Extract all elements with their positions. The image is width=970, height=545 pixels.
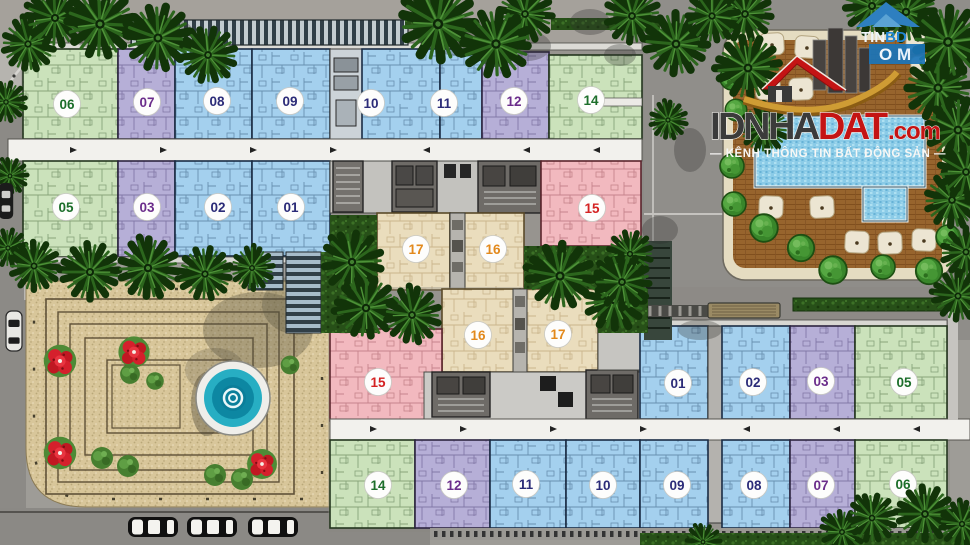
svg-text:.com: .com bbox=[888, 118, 940, 145]
svg-text:08: 08 bbox=[746, 478, 762, 493]
svg-text:16: 16 bbox=[470, 328, 486, 343]
svg-text:14: 14 bbox=[370, 478, 386, 493]
svg-text:15: 15 bbox=[584, 201, 600, 216]
svg-text:02: 02 bbox=[210, 200, 225, 215]
svg-text:05: 05 bbox=[896, 375, 912, 390]
svg-text:TINBD: TINBD bbox=[861, 29, 907, 46]
svg-text:06: 06 bbox=[59, 97, 75, 112]
svg-text:09: 09 bbox=[669, 478, 684, 493]
svg-text:17: 17 bbox=[550, 327, 565, 342]
svg-text:IDNHADAT: IDNHADAT bbox=[710, 106, 888, 148]
svg-text:11: 11 bbox=[519, 477, 534, 492]
svg-text:12: 12 bbox=[446, 478, 461, 493]
svg-text:— KÊNH THÔNG TIN BẤT ĐỘNG SẢN: — KÊNH THÔNG TIN BẤT ĐỘNG SẢN — bbox=[710, 147, 946, 160]
svg-text:14: 14 bbox=[583, 93, 599, 108]
svg-text:03: 03 bbox=[139, 200, 155, 215]
svg-text:03: 03 bbox=[813, 374, 829, 389]
svg-text:01: 01 bbox=[283, 200, 299, 215]
svg-text:02: 02 bbox=[745, 375, 760, 390]
svg-text:10: 10 bbox=[363, 96, 378, 111]
svg-text:07: 07 bbox=[139, 95, 154, 110]
svg-text:10: 10 bbox=[595, 478, 610, 493]
svg-text:11: 11 bbox=[437, 96, 452, 111]
svg-text:05: 05 bbox=[58, 200, 74, 215]
svg-text:09: 09 bbox=[282, 94, 297, 109]
svg-text:16: 16 bbox=[485, 242, 501, 257]
svg-text:12: 12 bbox=[506, 94, 521, 109]
svg-text:15: 15 bbox=[370, 375, 386, 390]
svg-text:08: 08 bbox=[209, 94, 225, 109]
svg-text:O M: O M bbox=[879, 45, 911, 64]
svg-text:17: 17 bbox=[408, 242, 423, 257]
svg-text:07: 07 bbox=[813, 478, 828, 493]
svg-text:01: 01 bbox=[670, 376, 686, 391]
